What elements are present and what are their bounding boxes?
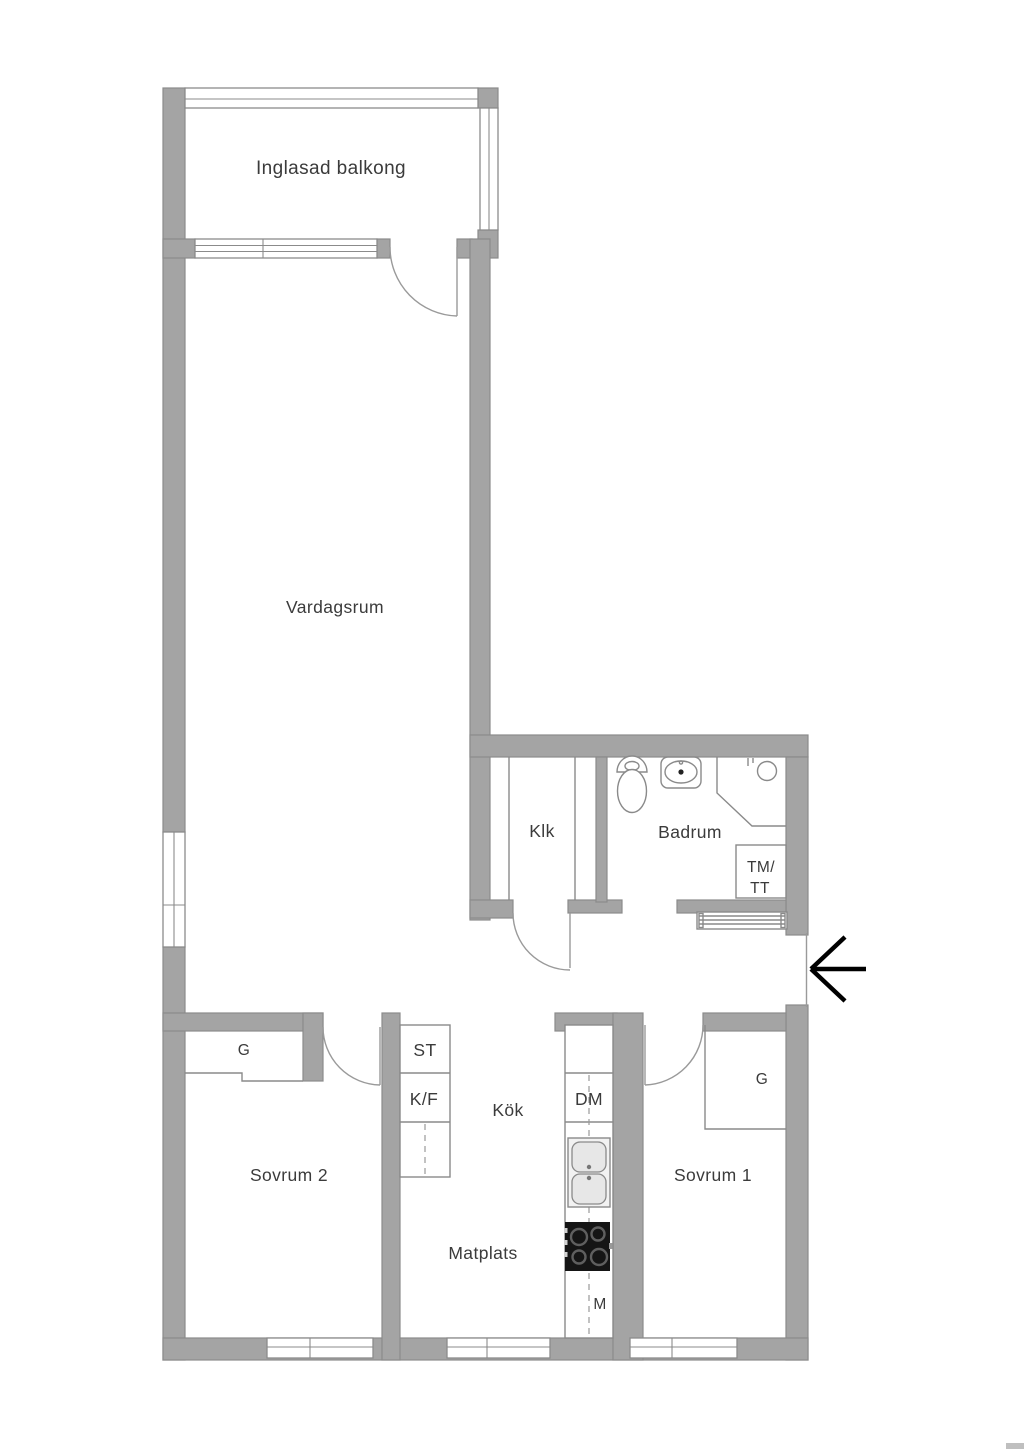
floorplan-drawing: Inglasad balkong Vardagsrum Klk Badrum T… (0, 0, 1024, 1449)
sink-icon (661, 757, 701, 788)
fridge-freezer-label: K/F (410, 1089, 438, 1109)
pier-bedroom2-wardrobe (303, 1013, 323, 1081)
balcony-sill-pier-w (163, 239, 195, 258)
klk-door-swing (513, 913, 570, 970)
cleaning-cabinet-label: ST (413, 1040, 436, 1060)
pier-klk-se (568, 900, 622, 913)
microwave-label: M (593, 1296, 606, 1313)
wardrobe1-label: G (756, 1071, 768, 1088)
balcony-label: Inglasad balkong (256, 158, 406, 179)
livingroom-label: Vardagsrum (286, 597, 384, 617)
pier-klk-sw (470, 900, 513, 918)
kitchen-label: Kök (492, 1100, 523, 1120)
balcony-pier-ne (478, 88, 498, 108)
bedroom2-door-swing (323, 1027, 380, 1085)
dining-label: Matplats (448, 1243, 517, 1263)
toilet-icon (617, 756, 647, 813)
wall-livingroom-right (470, 239, 490, 920)
dishwasher-label: DM (575, 1089, 603, 1109)
window-kitchen (447, 1338, 550, 1358)
balcony-sill-pier-mid (377, 239, 390, 258)
wall-left-upper (163, 88, 185, 832)
radiator-icon (697, 912, 787, 929)
shower-icon (717, 757, 786, 826)
wall-kitchen-bedroom1 (613, 1013, 643, 1360)
wall-bedroom2-top (163, 1013, 323, 1031)
wall-right-lower (786, 1005, 808, 1360)
entrance-arrow-icon (811, 937, 866, 1001)
wall-right-bathroom (786, 757, 808, 935)
balcony-glazing-top (185, 88, 478, 108)
bedroom2-wardrobe (185, 1073, 303, 1081)
washer-label-line1: TM/ (747, 859, 775, 876)
wall-klk-bathroom (596, 757, 607, 902)
bedroom2-label: Sovrum 2 (250, 1165, 328, 1185)
wardrobes (185, 1025, 786, 1129)
bathroom-label: Badrum (658, 822, 722, 842)
bedroom1-door-swing (645, 1025, 703, 1085)
corner-watermark (1006, 1443, 1024, 1449)
klk-label: Klk (529, 821, 555, 841)
window-bedroom1 (630, 1338, 737, 1358)
balcony-door-swing (390, 247, 457, 316)
wall-bathroom-south (677, 900, 786, 913)
wall-left-lower (163, 947, 185, 1360)
doors (323, 247, 807, 1085)
bedroom1-label: Sovrum 1 (674, 1165, 752, 1185)
wall-bedroom1-top (703, 1013, 786, 1031)
wall-bedroom2-kitchen (382, 1013, 400, 1360)
window-balcony-livingroom (195, 239, 377, 258)
bedroom1-wardrobe (705, 1025, 786, 1129)
wall-extension-top (470, 735, 808, 757)
kitchen-sink-icon (568, 1138, 610, 1207)
floorplan-canvas: Inglasad balkong Vardagsrum Klk Badrum T… (0, 0, 1024, 1449)
wardrobe2-label: G (238, 1042, 250, 1059)
washer-label-line2: TT (750, 880, 770, 897)
stove-icon (564, 1222, 613, 1271)
kitchen-fixtures (400, 1025, 613, 1338)
window-bedroom2 (267, 1338, 373, 1358)
